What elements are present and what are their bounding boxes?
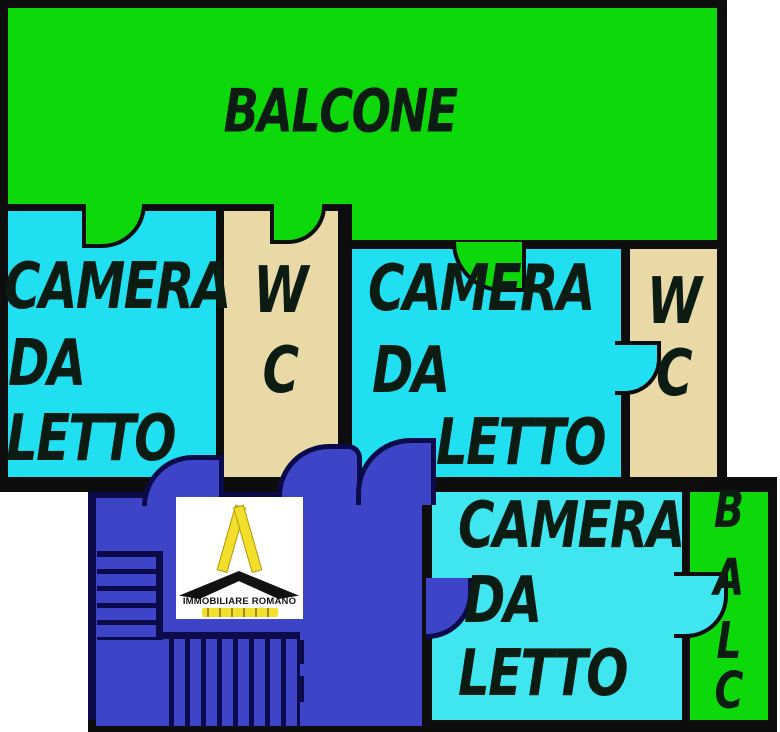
logo-subtext: [202, 608, 278, 617]
label-wc2-c: C: [636, 341, 711, 405]
wall-segment: [717, 0, 727, 481]
handrail-mark: [297, 676, 304, 702]
room-balcone-right: [352, 204, 717, 240]
floorplan: IMMOBILIARE ROMANO BALCONE CAMERA DA LET…: [0, 0, 780, 732]
label-camera2-line1: CAMERA: [368, 256, 594, 320]
label-balc-c: C: [697, 665, 761, 716]
staircase-upper-flight: [97, 551, 163, 640]
label-camera1-line2: DA: [8, 331, 85, 395]
label-camera3-line2: DA: [464, 568, 541, 632]
label-balcone: BALCONE: [168, 82, 512, 141]
wall-segment: [88, 492, 96, 720]
label-wc1-c: C: [230, 338, 330, 402]
label-camera1-line3: LETTO: [6, 406, 175, 470]
label-camera2-line2: DA: [372, 338, 449, 402]
label-camera3-line1: CAMERA: [458, 493, 684, 557]
handrail-mark: [297, 640, 304, 664]
logo-title: IMMOBILIARE ROMANO: [176, 597, 303, 607]
label-balc-a: A: [697, 552, 761, 603]
label-balc-b: B: [697, 484, 761, 535]
label-wc1-w: W: [230, 258, 330, 322]
roof-icon: [179, 571, 299, 599]
wall-segment: [216, 202, 224, 481]
label-camera2-line3: LETTO: [436, 410, 605, 474]
label-wc2-w: W: [636, 269, 711, 333]
label-camera1-line1: CAMERA: [4, 254, 230, 318]
wall-segment: [768, 481, 777, 732]
agency-logo: IMMOBILIARE ROMANO: [176, 497, 303, 619]
wall-segment: [0, 0, 727, 8]
label-balc-l: L: [697, 615, 761, 666]
label-camera3-line3: LETTO: [458, 641, 627, 705]
staircase-lower-flight: [158, 632, 300, 727]
wall-segment: [345, 240, 727, 249]
compass-icon: [233, 505, 262, 573]
